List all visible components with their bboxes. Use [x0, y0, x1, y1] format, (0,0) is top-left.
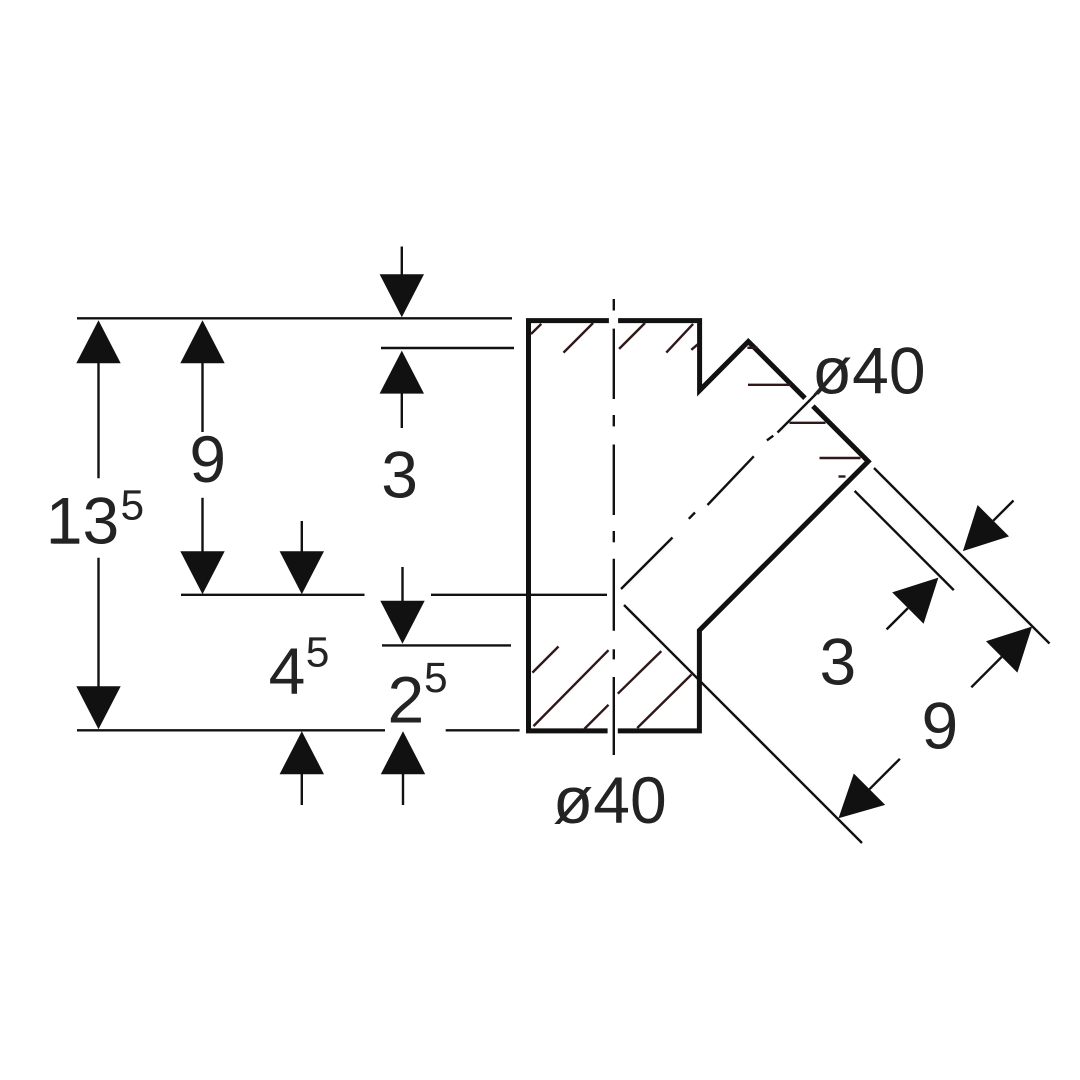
svg-text:9: 9	[922, 688, 959, 762]
svg-text:4: 4	[269, 634, 306, 708]
svg-text:ø40: ø40	[553, 763, 667, 837]
svg-text:3: 3	[819, 624, 856, 698]
svg-text:9: 9	[189, 422, 226, 496]
svg-text:13: 13	[46, 484, 119, 558]
svg-text:5: 5	[120, 483, 144, 530]
svg-text:5: 5	[306, 630, 330, 677]
svg-text:5: 5	[424, 655, 448, 702]
svg-text:ø40: ø40	[812, 333, 926, 407]
svg-text:2: 2	[388, 663, 425, 737]
svg-text:3: 3	[381, 437, 418, 511]
